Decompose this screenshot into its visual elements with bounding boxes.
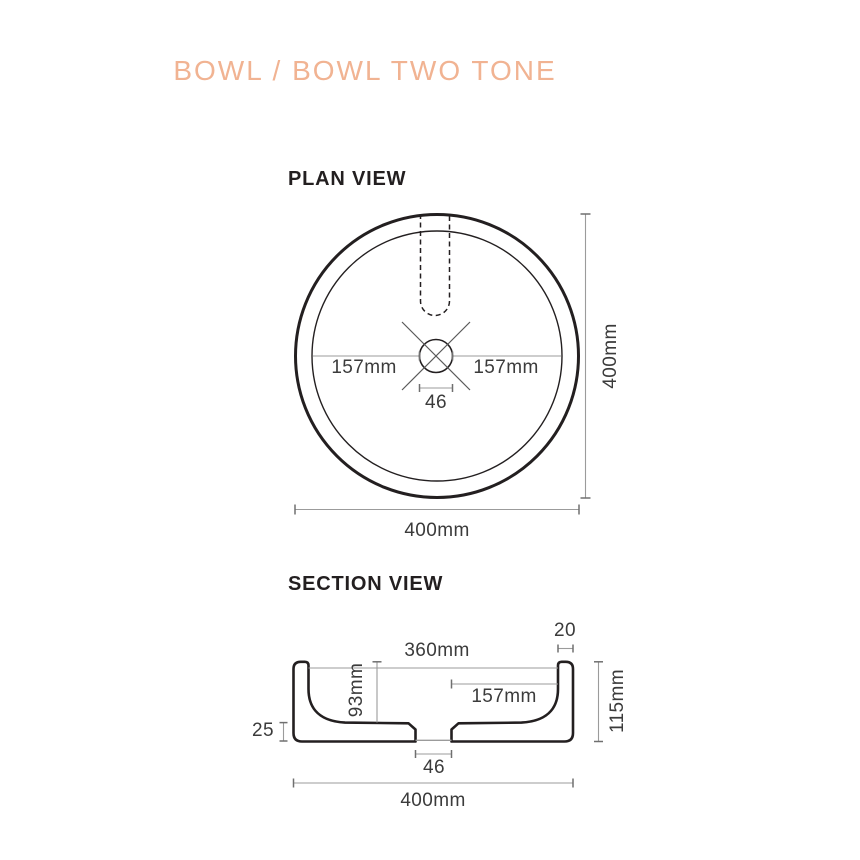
drawing-page: { "colors": { "background": "#ffffff", "… xyxy=(0,0,860,860)
section-dim-inner-depth: 93mm xyxy=(346,663,368,717)
plan-dim-drain-diameter: 46 xyxy=(425,392,447,414)
plan-dim-left-to-drain: 157mm xyxy=(331,357,396,379)
section-dim-inner-width: 360mm xyxy=(404,640,469,662)
plan-dim-overall-height: 400mm xyxy=(600,323,622,388)
plan-view-heading: PLAN VIEW xyxy=(288,168,406,191)
page-title: BOWL / BOWL TWO TONE xyxy=(173,55,556,87)
section-dim-overall-width: 400mm xyxy=(400,790,465,812)
drawing-canvas xyxy=(0,0,860,860)
section-dim-base-thickness: 25 xyxy=(252,720,274,742)
section-dim-rim-thickness: 20 xyxy=(554,620,576,642)
section-dim-drain-to-wall: 157mm xyxy=(471,686,536,708)
plan-dim-overall-width: 400mm xyxy=(404,520,469,542)
section-dim-overall-height: 115mm xyxy=(607,669,629,733)
section-view-heading: SECTION VIEW xyxy=(288,573,443,596)
section-dim-drain-width: 46 xyxy=(423,757,445,779)
plan-dim-drain-to-right: 157mm xyxy=(473,357,538,379)
